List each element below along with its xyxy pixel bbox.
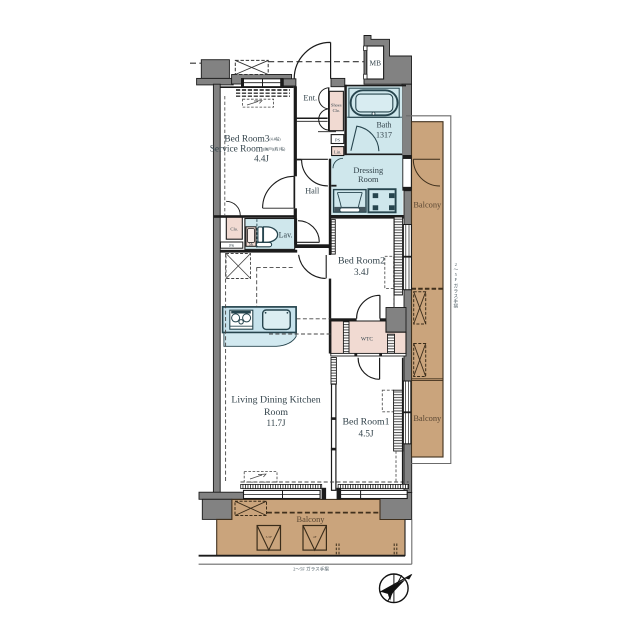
- svg-text:WTC: WTC: [361, 336, 373, 342]
- svg-text:Bed Room2: Bed Room2: [338, 255, 385, 266]
- svg-text:SK: SK: [249, 243, 254, 247]
- svg-text:Lav.: Lav.: [279, 231, 293, 240]
- svg-text:4.5J: 4.5J: [358, 429, 373, 439]
- svg-text:3.4J: 3.4J: [354, 267, 369, 277]
- svg-text:Bed Room1: Bed Room1: [342, 417, 389, 428]
- svg-text:Ent.: Ent.: [303, 94, 317, 103]
- svg-text:Balcony: Balcony: [413, 414, 442, 423]
- svg-text:Clo.: Clo.: [333, 108, 340, 113]
- svg-text:Hall: Hall: [305, 187, 320, 196]
- svg-text:Living Dining Kitchen: Living Dining Kitchen: [231, 395, 320, 406]
- svg-text:3-5F: 3-5F: [266, 535, 273, 539]
- svg-text:Room: Room: [358, 175, 379, 184]
- svg-text:Clo.: Clo.: [230, 226, 238, 231]
- svg-text:PS: PS: [335, 138, 341, 143]
- svg-text:Dressing: Dressing: [353, 166, 384, 175]
- svg-text:1317: 1317: [376, 131, 392, 140]
- svg-text:Bath: Bath: [376, 120, 391, 129]
- svg-text:2〜5F ガラス手摺: 2〜5F ガラス手摺: [293, 566, 329, 573]
- svg-text:Balcony: Balcony: [297, 515, 326, 524]
- svg-text:4.4J: 4.4J: [254, 153, 269, 163]
- svg-text:2〜5Fガラス手摺: 2〜5Fガラス手摺: [453, 262, 458, 310]
- svg-text:11.7J: 11.7J: [267, 418, 286, 428]
- svg-text:4F: 4F: [313, 535, 317, 539]
- svg-text:Room: Room: [264, 407, 288, 418]
- svg-text:Balcony: Balcony: [413, 201, 442, 210]
- svg-text:Lin.: Lin.: [334, 150, 342, 155]
- svg-text:PS: PS: [229, 243, 234, 248]
- svg-text:Shoes: Shoes: [331, 103, 342, 108]
- svg-text:MB: MB: [370, 59, 382, 68]
